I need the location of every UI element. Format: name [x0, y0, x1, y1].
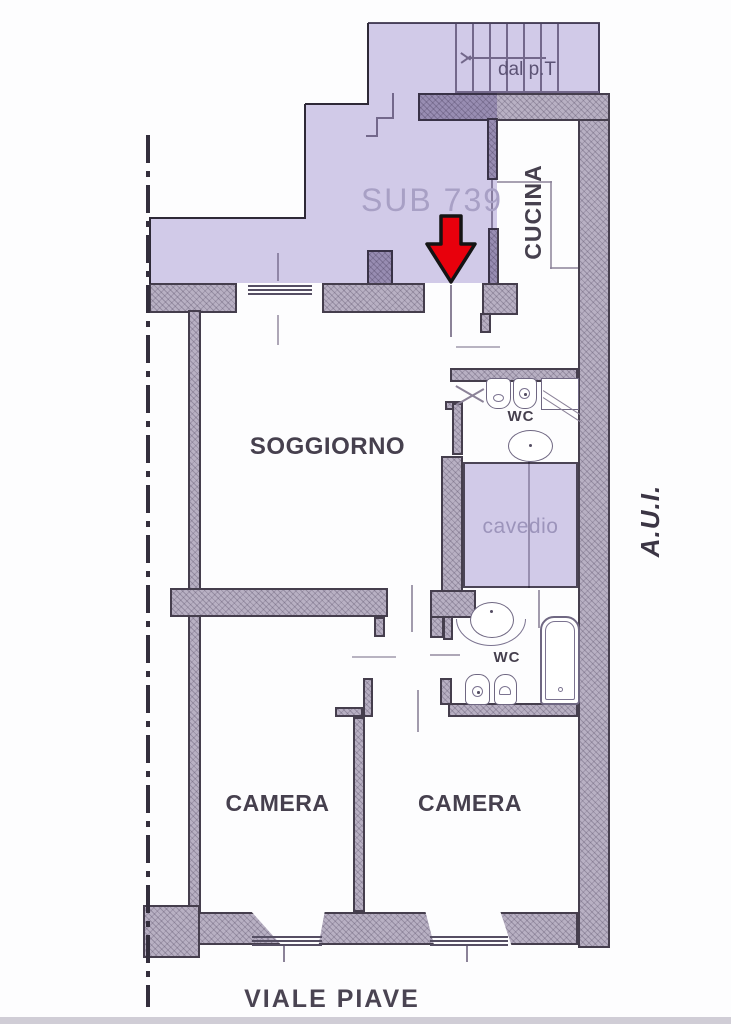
- wall-segment: [322, 283, 425, 313]
- overlay-edge: [149, 217, 305, 219]
- wall-stub: [363, 678, 373, 717]
- door-swing-line: [456, 385, 484, 402]
- entrance-arrow: [424, 214, 478, 286]
- bedroom-left-label-text: CAMERA: [226, 790, 330, 817]
- overlay-edge: [304, 104, 306, 219]
- sub-739-overlay: [0, 0, 731, 1024]
- wall-segment: [430, 590, 476, 618]
- wall-segment: [149, 283, 237, 313]
- window-glass-line: [252, 944, 322, 946]
- entrance-wall-leg: [480, 313, 491, 333]
- kitchen-label: CUCINA: [513, 157, 553, 267]
- window-glass-line: [252, 940, 322, 942]
- wall-stub: [374, 617, 385, 637]
- door-line: [430, 654, 460, 656]
- scan-edge-strip: [0, 1017, 731, 1024]
- door-line: [417, 690, 419, 732]
- right-margin-label: A.U.I.: [630, 469, 670, 573]
- bidet-basin: [493, 394, 504, 402]
- living-room-label: SOGGIORNO: [245, 432, 410, 462]
- overlay-edge: [367, 23, 369, 105]
- exterior-wall-right: [578, 93, 610, 948]
- wc-lower-label: WC: [477, 647, 537, 667]
- overlay-edge: [305, 103, 369, 105]
- bottom-left-corner: [143, 905, 200, 958]
- wall-stub: [335, 707, 363, 717]
- street-label-text: VIALE PIAVE: [244, 985, 420, 1014]
- kitchen-counter-line: [550, 267, 578, 269]
- bidet-basin: [499, 686, 511, 695]
- wall-stub: [443, 616, 453, 640]
- sink-drain-dot: [490, 610, 493, 613]
- window-glass-line: [248, 289, 312, 291]
- bottom-wall: [145, 912, 578, 945]
- wall-stub: [452, 403, 463, 455]
- window-glass-line: [430, 944, 508, 946]
- sink-fixture: [470, 602, 514, 638]
- entrance-door-line: [450, 285, 452, 337]
- right-margin-label-text: A.U.I.: [635, 485, 666, 557]
- kitchen-label-text: CUCINA: [520, 164, 547, 259]
- annex-label-text: SUB 739: [361, 182, 503, 219]
- floor-plan-canvas: dal p.T: [0, 0, 731, 1024]
- window-glass-line: [430, 936, 508, 938]
- living-room-bottom-wall: [170, 588, 388, 617]
- entrance-wall: [482, 283, 518, 315]
- threshold-line: [352, 656, 396, 658]
- threshold-line: [456, 346, 500, 348]
- bedroom-right-label-text: CAMERA: [418, 790, 522, 817]
- bedroom-left-label: CAMERA: [205, 788, 350, 818]
- wall-stub: [440, 678, 452, 705]
- window-glass-line: [430, 940, 508, 942]
- bedroom-divider-wall: [353, 717, 365, 912]
- wc-upper-label: WC: [491, 406, 551, 426]
- window-glass-line: [248, 293, 312, 295]
- boundary-line: [146, 135, 150, 1007]
- window-glass-line: [252, 936, 322, 938]
- wc-lower-bottom-wall: [448, 703, 578, 717]
- cavedio-label: cavedio: [463, 512, 578, 542]
- window-glass-line: [248, 285, 312, 287]
- street-label: VIALE PIAVE: [232, 984, 432, 1014]
- wc-lower-label-text: WC: [494, 649, 521, 666]
- toilet-drain-dot: [477, 691, 480, 694]
- window-reveal-line: [283, 946, 285, 962]
- bath-door-line: [538, 590, 540, 628]
- bedroom-right-label: CAMERA: [395, 788, 545, 818]
- shaft-wall: [441, 456, 463, 604]
- window-reveal-line: [466, 946, 468, 962]
- wall-segment: [430, 616, 444, 638]
- wc-upper-label-text: WC: [508, 408, 535, 425]
- cavedio-label-text: cavedio: [483, 515, 559, 539]
- door-swing-line: [456, 388, 484, 405]
- sink-drain-dot: [529, 444, 532, 447]
- door-line: [411, 585, 413, 632]
- toilet-drain-dot: [524, 393, 527, 396]
- living-room-label-text: SOGGIORNO: [250, 433, 405, 461]
- bathtub-drain: [558, 687, 563, 692]
